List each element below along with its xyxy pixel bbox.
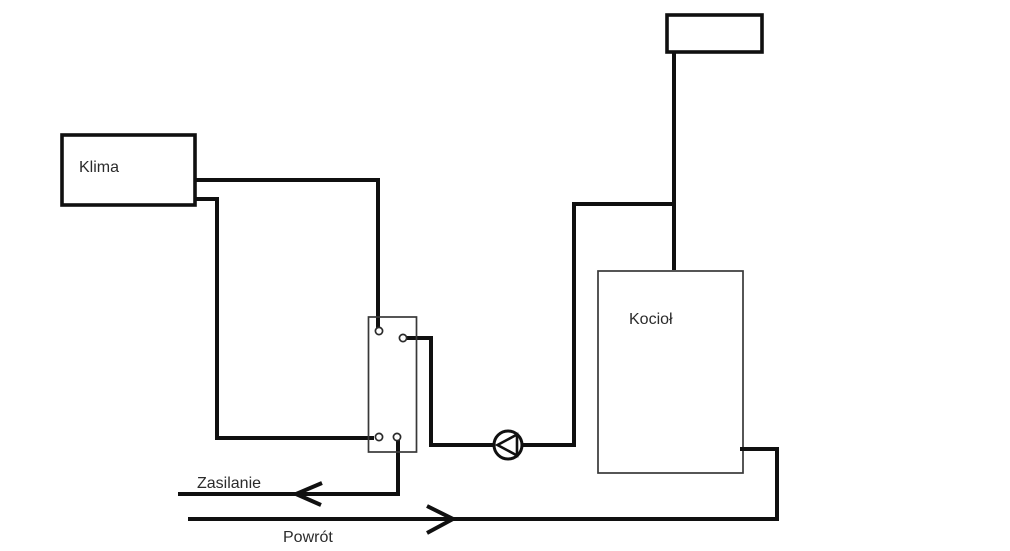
klima-return-pipe xyxy=(194,199,374,438)
port-top-right-icon xyxy=(399,334,406,341)
top-box xyxy=(667,15,762,52)
port-top-left-icon xyxy=(375,327,382,334)
paint-canvas: Klima Kocioł Zasilanie Powrót xyxy=(0,0,1010,551)
port-bottom-left-icon xyxy=(375,433,382,440)
return-label: Powrót xyxy=(283,529,333,546)
pump-icon xyxy=(494,431,522,459)
klima-label: Klima xyxy=(79,159,119,176)
boiler-return-pipe xyxy=(740,449,777,519)
schematic-drawing: Klima Kocioł Zasilanie Powrót xyxy=(0,0,1010,551)
kociol-box xyxy=(598,271,743,473)
port-bottom-right-icon xyxy=(393,433,400,440)
supply-label: Zasilanie xyxy=(197,475,261,492)
klima-supply-pipe xyxy=(194,180,378,328)
kociol-label: Kocioł xyxy=(629,311,673,328)
